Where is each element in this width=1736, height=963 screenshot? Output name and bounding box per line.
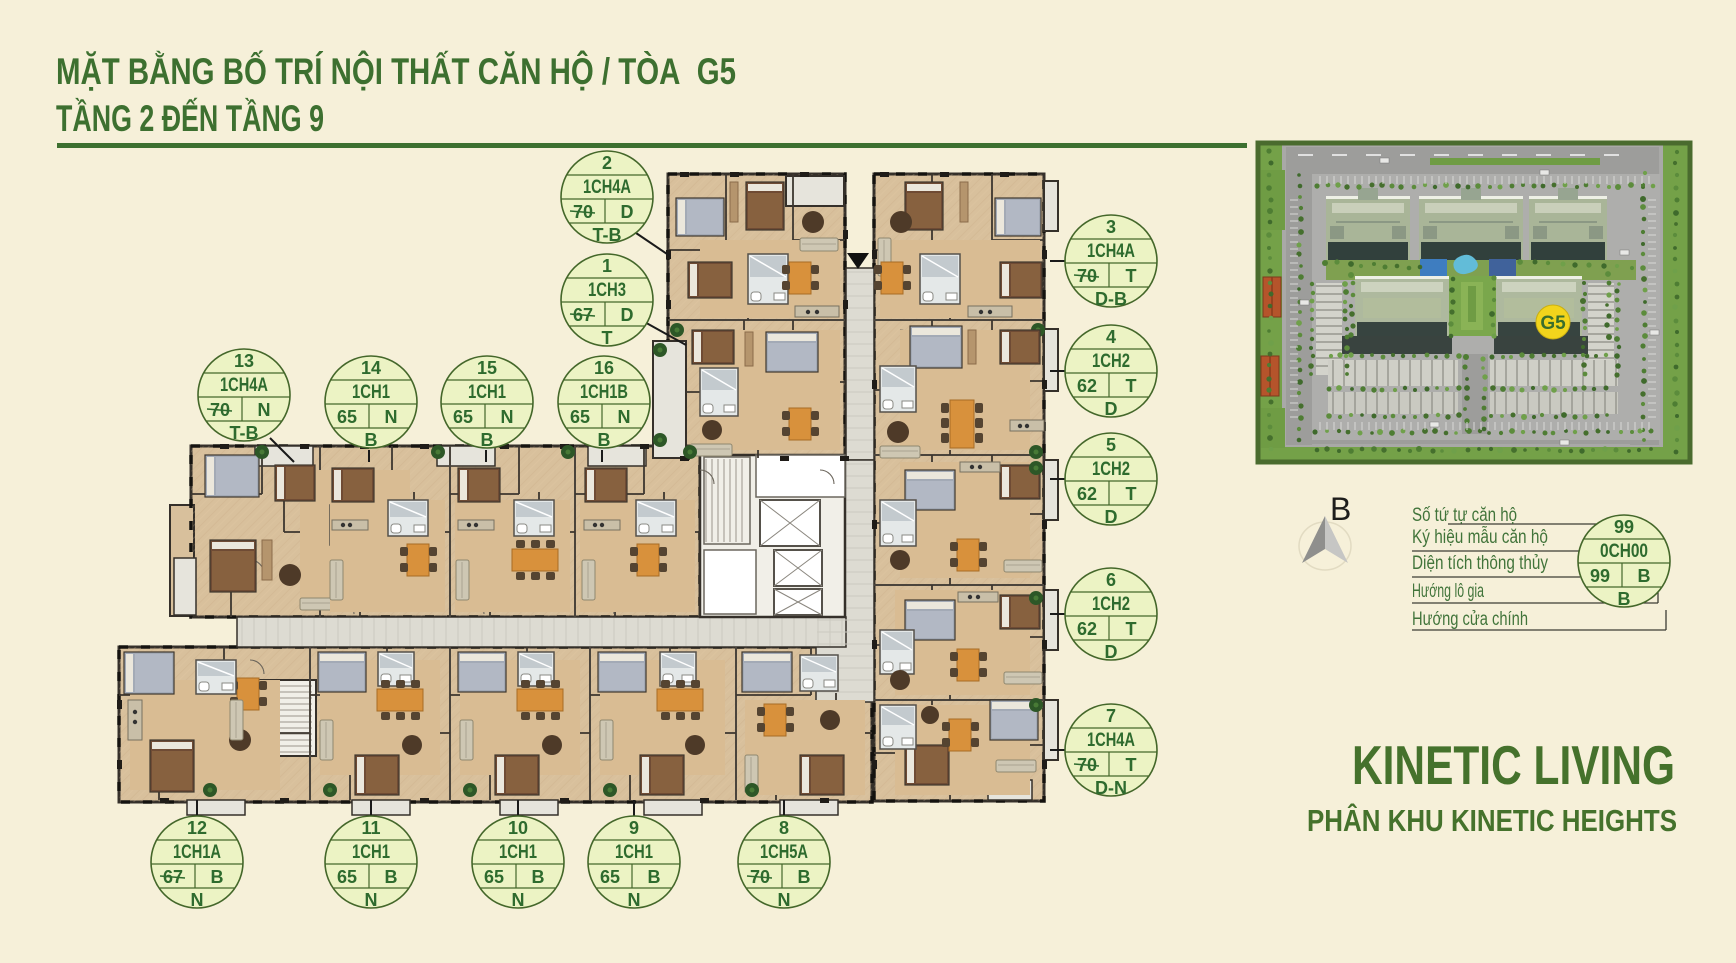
svg-text:1CH2: 1CH2 bbox=[1092, 594, 1130, 615]
svg-text:B: B bbox=[1638, 566, 1651, 586]
svg-text:T: T bbox=[1126, 619, 1137, 639]
svg-text:Diện tích thông thủy: Diện tích thông thủy bbox=[1412, 553, 1548, 574]
svg-text:1CH1: 1CH1 bbox=[615, 842, 653, 863]
svg-text:13: 13 bbox=[234, 351, 254, 371]
svg-text:4: 4 bbox=[1106, 327, 1116, 347]
svg-text:G5: G5 bbox=[1540, 313, 1566, 334]
svg-text:2: 2 bbox=[602, 153, 612, 173]
svg-text:3: 3 bbox=[1106, 217, 1116, 237]
svg-text:T-B: T-B bbox=[230, 423, 259, 443]
svg-text:1CH4A: 1CH4A bbox=[1087, 730, 1135, 751]
svg-text:T: T bbox=[1126, 484, 1137, 504]
svg-text:D-B: D-B bbox=[1095, 289, 1127, 309]
svg-text:65: 65 bbox=[484, 867, 504, 887]
svg-text:D: D bbox=[1105, 507, 1118, 527]
svg-text:99: 99 bbox=[1590, 566, 1610, 586]
svg-text:14: 14 bbox=[361, 358, 381, 378]
svg-text:TẦNG 2 ĐẾN TẦNG 9: TẦNG 2 ĐẾN TẦNG 9 bbox=[56, 98, 324, 139]
svg-text:1CH1A: 1CH1A bbox=[173, 842, 221, 863]
svg-text:62: 62 bbox=[1077, 619, 1097, 639]
svg-text:B: B bbox=[1330, 491, 1351, 527]
svg-text:T: T bbox=[1126, 376, 1137, 396]
svg-text:PHÂN KHU KINETIC HEIGHTS: PHÂN KHU KINETIC HEIGHTS bbox=[1307, 802, 1677, 838]
svg-text:B: B bbox=[798, 867, 811, 887]
svg-text:B: B bbox=[648, 867, 661, 887]
svg-text:Hướng lô gia: Hướng lô gia bbox=[1412, 581, 1484, 602]
svg-text:6: 6 bbox=[1106, 570, 1116, 590]
svg-text:N: N bbox=[618, 407, 631, 427]
svg-text:1: 1 bbox=[602, 256, 612, 276]
svg-text:65: 65 bbox=[337, 867, 357, 887]
svg-text:1CH1: 1CH1 bbox=[352, 382, 390, 403]
svg-text:B: B bbox=[211, 867, 224, 887]
svg-text:N: N bbox=[778, 890, 791, 910]
svg-text:Hướng cửa chính: Hướng cửa chính bbox=[1412, 609, 1528, 630]
svg-text:N: N bbox=[258, 400, 271, 420]
svg-text:10: 10 bbox=[508, 818, 528, 838]
svg-text:KINETIC LIVING: KINETIC LIVING bbox=[1352, 734, 1675, 796]
svg-text:65: 65 bbox=[453, 407, 473, 427]
svg-text:N: N bbox=[385, 407, 398, 427]
svg-text:T: T bbox=[1126, 755, 1137, 775]
svg-text:Ký hiệu mẫu căn hộ: Ký hiệu mẫu căn hộ bbox=[1412, 526, 1548, 548]
svg-text:7: 7 bbox=[1106, 706, 1116, 726]
svg-text:0CH00: 0CH00 bbox=[1600, 541, 1648, 562]
svg-text:MẶT BẰNG BỐ TRÍ NỘI THẤT CĂN H: MẶT BẰNG BỐ TRÍ NỘI THẤT CĂN HỘ / TÒA G5 bbox=[56, 50, 736, 92]
svg-text:65: 65 bbox=[337, 407, 357, 427]
svg-text:65: 65 bbox=[570, 407, 590, 427]
svg-text:5: 5 bbox=[1106, 435, 1116, 455]
svg-text:N: N bbox=[512, 890, 525, 910]
svg-text:B: B bbox=[385, 867, 398, 887]
svg-text:D: D bbox=[621, 202, 634, 222]
svg-text:1CH4A: 1CH4A bbox=[220, 375, 268, 396]
svg-text:11: 11 bbox=[361, 818, 380, 838]
svg-text:B: B bbox=[481, 430, 494, 450]
svg-text:N: N bbox=[191, 890, 204, 910]
svg-text:B: B bbox=[365, 430, 378, 450]
svg-text:1CH1: 1CH1 bbox=[468, 382, 506, 403]
svg-text:62: 62 bbox=[1077, 376, 1097, 396]
svg-text:T: T bbox=[1126, 266, 1137, 286]
svg-text:B: B bbox=[1618, 589, 1631, 609]
svg-text:15: 15 bbox=[477, 358, 497, 378]
svg-text:B: B bbox=[598, 430, 611, 450]
svg-text:1CH1: 1CH1 bbox=[499, 842, 537, 863]
svg-text:1CH2: 1CH2 bbox=[1092, 351, 1130, 372]
svg-text:N: N bbox=[365, 890, 378, 910]
svg-text:8: 8 bbox=[779, 818, 789, 838]
svg-text:Số tứ tự căn hộ: Số tứ tự căn hộ bbox=[1412, 505, 1517, 526]
svg-text:12: 12 bbox=[187, 818, 207, 838]
svg-text:D: D bbox=[1105, 642, 1118, 662]
svg-text:D: D bbox=[621, 305, 634, 325]
svg-text:D-N: D-N bbox=[1095, 778, 1127, 798]
svg-text:B: B bbox=[532, 867, 545, 887]
svg-text:1CH1: 1CH1 bbox=[352, 842, 390, 863]
svg-text:65: 65 bbox=[600, 867, 620, 887]
svg-text:1CH5A: 1CH5A bbox=[760, 842, 808, 863]
svg-text:1CH4A: 1CH4A bbox=[1087, 241, 1135, 262]
svg-text:T-B: T-B bbox=[593, 225, 622, 245]
svg-text:9: 9 bbox=[629, 818, 639, 838]
svg-text:1CH1B: 1CH1B bbox=[580, 382, 628, 403]
svg-text:1CH2: 1CH2 bbox=[1092, 459, 1130, 480]
svg-text:16: 16 bbox=[594, 358, 614, 378]
svg-text:62: 62 bbox=[1077, 484, 1097, 504]
svg-text:N: N bbox=[628, 890, 641, 910]
svg-text:T: T bbox=[602, 328, 613, 348]
svg-text:1CH4A: 1CH4A bbox=[583, 177, 631, 198]
svg-text:99: 99 bbox=[1614, 517, 1634, 537]
svg-text:1CH3: 1CH3 bbox=[588, 280, 626, 301]
svg-text:D: D bbox=[1105, 399, 1118, 419]
svg-text:N: N bbox=[501, 407, 514, 427]
